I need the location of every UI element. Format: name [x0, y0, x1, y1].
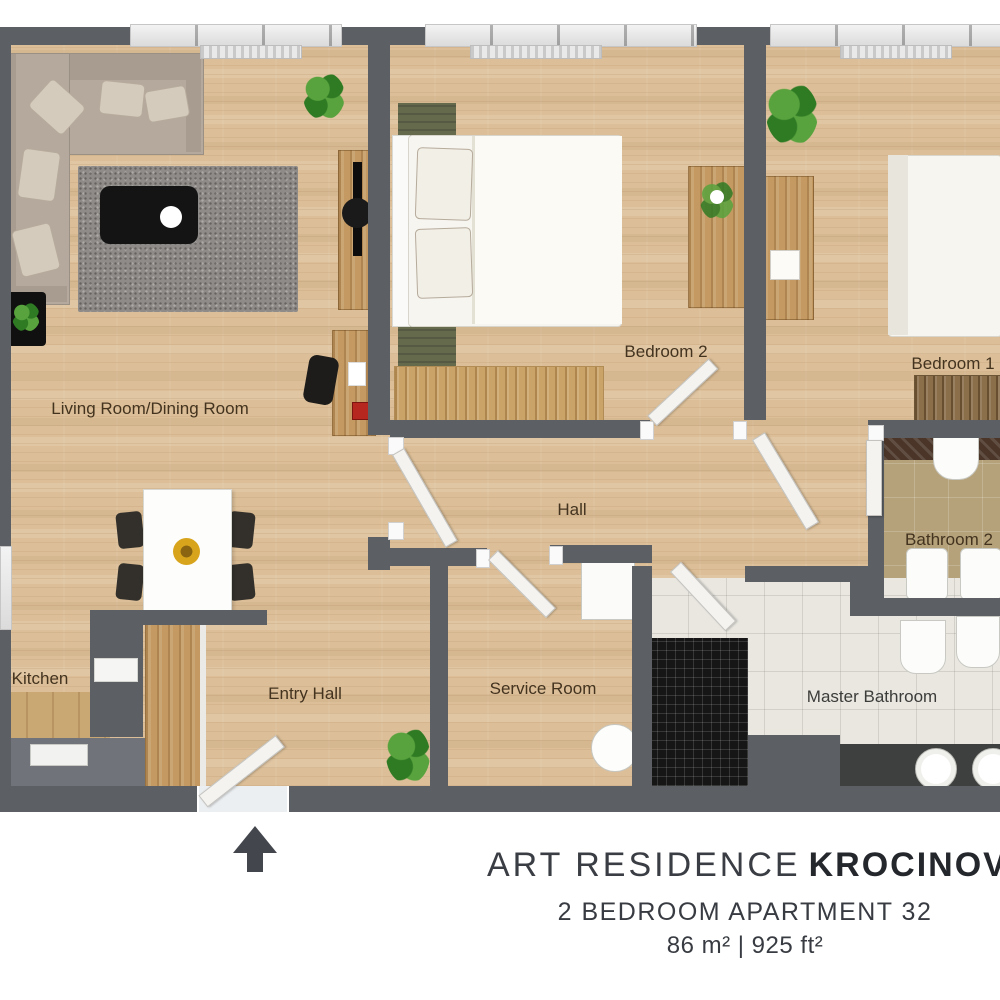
bedroom1-bench — [914, 375, 1000, 423]
door-jamb — [733, 421, 747, 440]
bed2-pillow — [415, 227, 473, 299]
bedroom1-plant — [766, 82, 818, 146]
room-label-master: Master Bathroom — [807, 687, 937, 707]
bedroom1-dresser — [762, 176, 814, 320]
radiator — [470, 45, 602, 59]
room-label-bedroom1: Bedroom 1 — [911, 354, 994, 374]
entrance-arrow-icon — [233, 826, 277, 853]
room-label-entry: Entry Hall — [268, 684, 342, 704]
tray-plant — [12, 302, 40, 332]
door-jamb — [388, 522, 404, 540]
door-jamb — [549, 546, 563, 565]
sofa-pillow — [98, 80, 145, 118]
living-plant — [303, 72, 345, 120]
apartment-area: 86 m² | 925 ft² — [495, 932, 995, 960]
project-title: ART RESIDENCEKROCINOVA — [487, 846, 1000, 885]
master-sink-left — [915, 748, 957, 790]
coffee-table — [100, 186, 198, 244]
wall-living-bedroom2 — [368, 45, 390, 435]
bed2-pillow — [415, 147, 473, 221]
wall-left — [0, 45, 11, 786]
dresser-flowers-white — [710, 190, 724, 204]
dining-bowl — [173, 538, 200, 565]
wall-bottom — [0, 786, 1000, 812]
floor-plan-page: Living Room/Dining Room Bedroom 2 Bedroo… — [0, 0, 1000, 1000]
entry-plant — [386, 726, 430, 784]
bedroom2-bench-rug — [394, 366, 604, 424]
coffee-table-decor — [160, 206, 182, 228]
wall-entry-service — [430, 566, 448, 786]
project-title-bold: KROCINOVA — [809, 846, 1000, 884]
room-label-service: Service Room — [490, 679, 597, 699]
wall-hall-south-right — [550, 545, 652, 563]
room-label-living: Living Room/Dining Room — [51, 399, 248, 419]
washing-machine — [581, 562, 635, 620]
kitchen-island-counter — [145, 614, 202, 792]
room-label-bathroom2: Bathroom 2 — [905, 530, 993, 550]
kitchen-sink — [30, 744, 88, 766]
bed2-duvet — [472, 136, 622, 324]
master-bidet — [956, 616, 1000, 668]
kitchen-island-edge — [200, 614, 206, 790]
wall-bathroom2-north — [868, 420, 1000, 438]
wall-masterbath-stub — [748, 735, 840, 786]
radiator — [200, 45, 302, 59]
room-label-kitchen: Kitchen — [12, 669, 69, 689]
wall-master-jog — [850, 566, 868, 616]
bathroom2-door — [866, 440, 882, 516]
desk-paper — [348, 362, 366, 386]
wall-bedroom2-bedroom1 — [744, 45, 766, 420]
room-label-bedroom2: Bedroom 2 — [624, 342, 707, 362]
bathroom2-cabinet — [960, 548, 1000, 600]
bathroom2-toilet — [906, 548, 948, 600]
dining-chair — [115, 511, 145, 550]
wall-service-master — [632, 566, 652, 786]
window-top-right — [770, 24, 1000, 47]
window-left-kitchen — [0, 546, 12, 630]
wall-hall-south-left — [387, 548, 487, 566]
apartment-subtitle: 2 BEDROOM APARTMENT 32 — [495, 898, 995, 927]
room-label-hall: Hall — [557, 500, 586, 520]
wall-bathroom2-south — [868, 598, 1000, 616]
door-jamb — [640, 421, 654, 440]
entrance-arrow-stem — [247, 852, 263, 872]
dining-chair — [115, 563, 145, 602]
master-toilet — [900, 620, 946, 674]
sofa-pillow — [17, 148, 62, 203]
bed1-sheet-fold — [888, 155, 908, 335]
kitchen-passthrough-sill — [94, 658, 138, 682]
shower-floor — [648, 638, 748, 786]
bedroom1-dresser-box — [770, 250, 800, 280]
wall-bedroom2-hall — [390, 420, 650, 438]
door-jamb — [868, 425, 884, 441]
project-title-light: ART RESIDENCE — [487, 846, 801, 884]
window-top-left — [130, 24, 342, 47]
window-top-middle — [425, 24, 697, 47]
radiator — [840, 45, 952, 59]
